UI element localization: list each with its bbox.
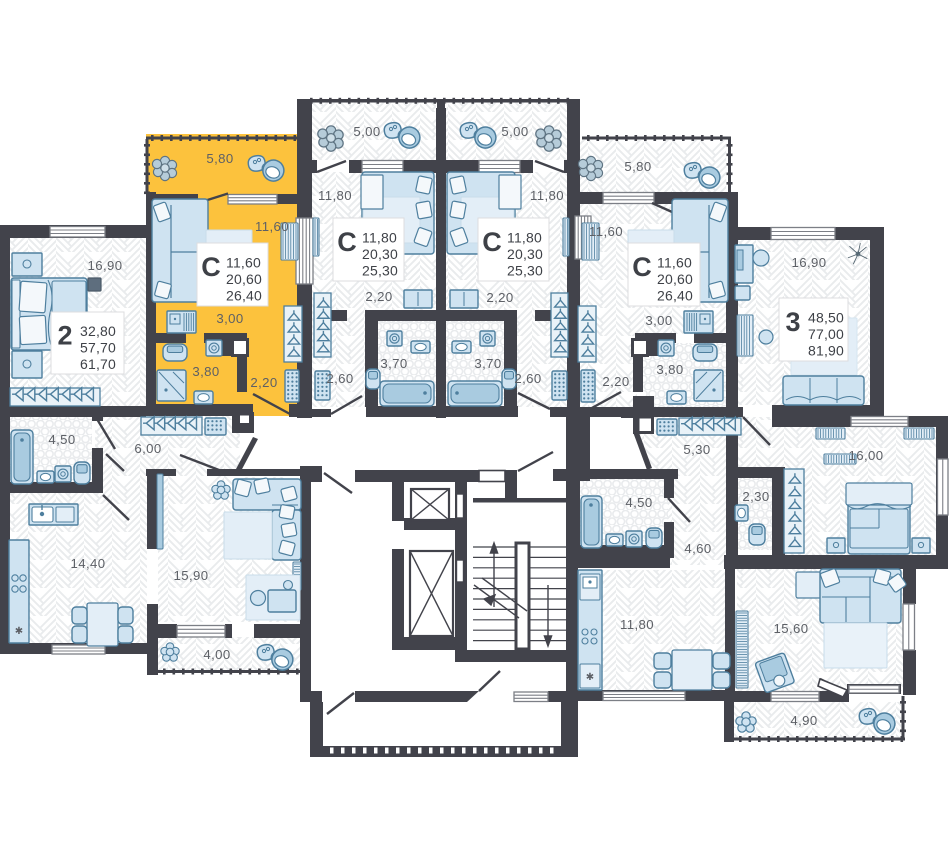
svg-text:4,50: 4,50 bbox=[625, 495, 652, 510]
svg-text:26,40: 26,40 bbox=[657, 288, 693, 304]
svg-text:81,90: 81,90 bbox=[808, 343, 844, 359]
svg-text:3,80: 3,80 bbox=[192, 364, 219, 379]
svg-text:11,80: 11,80 bbox=[530, 188, 564, 203]
svg-text:2: 2 bbox=[57, 321, 72, 351]
svg-text:11,60: 11,60 bbox=[255, 219, 289, 234]
svg-text:3,70: 3,70 bbox=[474, 356, 501, 371]
svg-text:61,70: 61,70 bbox=[80, 356, 116, 372]
svg-text:20,30: 20,30 bbox=[507, 246, 543, 262]
svg-text:3,80: 3,80 bbox=[656, 362, 683, 377]
svg-text:3: 3 bbox=[785, 307, 800, 337]
svg-text:20,60: 20,60 bbox=[226, 271, 262, 287]
svg-text:15,60: 15,60 bbox=[773, 621, 808, 636]
svg-text:16,00: 16,00 bbox=[848, 448, 883, 463]
svg-text:2,30: 2,30 bbox=[742, 489, 769, 504]
svg-text:2,20: 2,20 bbox=[250, 375, 277, 390]
svg-text:3,70: 3,70 bbox=[380, 356, 407, 371]
svg-text:C: C bbox=[482, 227, 502, 257]
svg-text:20,60: 20,60 bbox=[657, 271, 693, 287]
svg-text:2,20: 2,20 bbox=[365, 289, 392, 304]
svg-text:✱: ✱ bbox=[15, 626, 23, 637]
svg-text:11,60: 11,60 bbox=[589, 224, 623, 239]
svg-text:32,80: 32,80 bbox=[80, 323, 116, 339]
svg-text:C: C bbox=[337, 227, 357, 257]
svg-text:5,00: 5,00 bbox=[353, 124, 380, 139]
svg-text:11,80: 11,80 bbox=[318, 188, 352, 203]
svg-text:3,00: 3,00 bbox=[216, 311, 243, 326]
svg-text:3,00: 3,00 bbox=[645, 313, 672, 328]
svg-text:48,50: 48,50 bbox=[808, 310, 844, 326]
svg-text:4,60: 4,60 bbox=[684, 541, 711, 556]
svg-text:11,80: 11,80 bbox=[362, 230, 397, 246]
svg-text:✱: ✱ bbox=[586, 672, 594, 683]
svg-text:16,90: 16,90 bbox=[791, 255, 826, 270]
svg-text:2,60: 2,60 bbox=[514, 371, 541, 386]
svg-text:26,40: 26,40 bbox=[226, 288, 262, 304]
svg-text:4,00: 4,00 bbox=[203, 647, 230, 662]
svg-text:20,30: 20,30 bbox=[362, 246, 398, 262]
svg-text:C: C bbox=[201, 252, 221, 282]
svg-text:25,30: 25,30 bbox=[507, 263, 543, 279]
svg-text:11,60: 11,60 bbox=[657, 255, 692, 271]
svg-text:11,60: 11,60 bbox=[226, 255, 261, 271]
svg-text:77,00: 77,00 bbox=[808, 326, 844, 342]
svg-text:57,70: 57,70 bbox=[80, 340, 116, 356]
svg-text:5,30: 5,30 bbox=[683, 442, 710, 457]
svg-text:15,90: 15,90 bbox=[173, 568, 208, 583]
svg-text:5,80: 5,80 bbox=[206, 151, 233, 166]
svg-text:5,80: 5,80 bbox=[624, 159, 651, 174]
svg-text:5,00: 5,00 bbox=[501, 124, 528, 139]
svg-text:4,50: 4,50 bbox=[48, 432, 75, 447]
svg-text:4,90: 4,90 bbox=[790, 713, 817, 728]
svg-text:14,40: 14,40 bbox=[70, 556, 105, 571]
svg-text:C: C bbox=[632, 252, 652, 282]
svg-text:6,00: 6,00 bbox=[134, 441, 161, 456]
svg-text:2,20: 2,20 bbox=[486, 290, 513, 305]
svg-text:2,20: 2,20 bbox=[602, 374, 629, 389]
svg-text:16,90: 16,90 bbox=[87, 258, 122, 273]
svg-text:11,80: 11,80 bbox=[507, 230, 542, 246]
svg-text:11,80: 11,80 bbox=[620, 617, 654, 632]
svg-text:25,30: 25,30 bbox=[362, 263, 398, 279]
svg-text:2,60: 2,60 bbox=[326, 371, 353, 386]
